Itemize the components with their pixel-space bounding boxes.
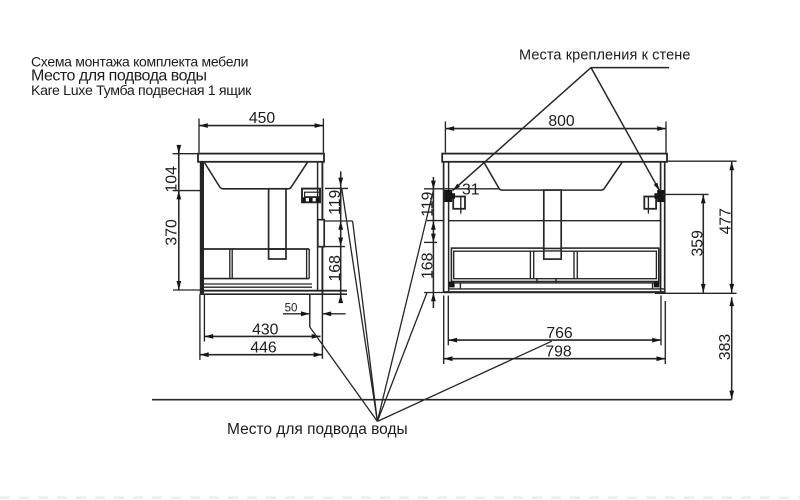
- svg-text:450: 450: [249, 110, 276, 127]
- svg-text:119: 119: [327, 189, 344, 214]
- svg-text:104: 104: [164, 166, 181, 193]
- svg-text:Места крепления к стене: Места крепления к стене: [519, 48, 691, 64]
- svg-text:168: 168: [327, 255, 344, 282]
- svg-text:168: 168: [420, 252, 437, 279]
- svg-text:383: 383: [717, 334, 734, 361]
- svg-text:359: 359: [689, 230, 706, 257]
- svg-text:Kare Luxe Тумба подвесная 1 ящ: Kare Luxe Тумба подвесная 1 ящик: [31, 83, 252, 99]
- svg-text:50: 50: [285, 302, 298, 314]
- svg-text:798: 798: [545, 344, 572, 361]
- svg-text:766: 766: [546, 325, 573, 342]
- svg-text:800: 800: [548, 113, 575, 130]
- svg-text:477: 477: [718, 208, 735, 234]
- svg-text:446: 446: [250, 340, 277, 357]
- svg-text:430: 430: [252, 321, 279, 338]
- svg-text:Место для подвода воды: Место для подвода воды: [227, 421, 408, 438]
- svg-text:370: 370: [164, 219, 181, 246]
